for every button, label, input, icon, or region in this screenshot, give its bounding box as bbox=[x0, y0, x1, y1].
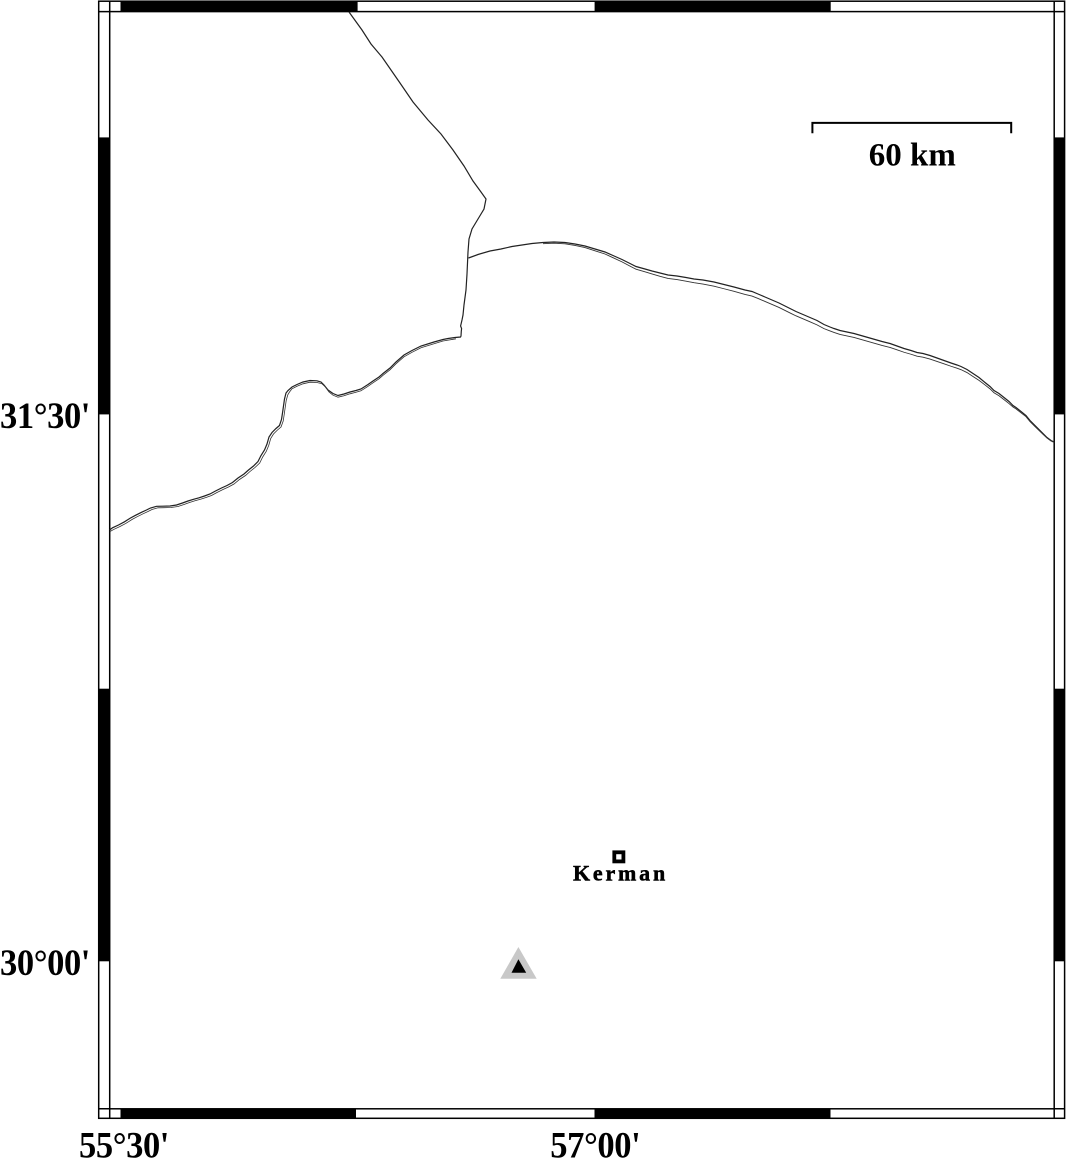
svg-text:31°30': 31°30' bbox=[0, 395, 90, 436]
svg-text:30°00': 30°00' bbox=[0, 942, 90, 983]
svg-text:55°30': 55°30' bbox=[79, 1125, 169, 1158]
svg-text:Kerman: Kerman bbox=[573, 861, 668, 886]
svg-text:60 km: 60 km bbox=[869, 138, 956, 174]
svg-text:57°00': 57°00' bbox=[550, 1125, 640, 1158]
